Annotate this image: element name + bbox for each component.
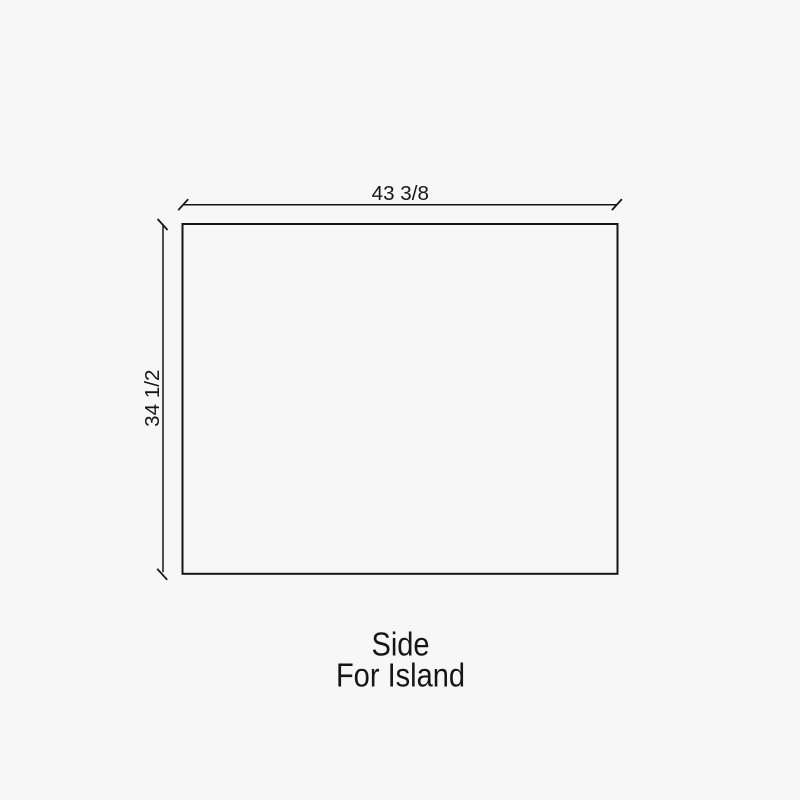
svg-text:For Island: For Island [336,657,465,694]
svg-text:43 3/8: 43 3/8 [372,182,429,205]
svg-text:34 1/2: 34 1/2 [141,370,164,427]
